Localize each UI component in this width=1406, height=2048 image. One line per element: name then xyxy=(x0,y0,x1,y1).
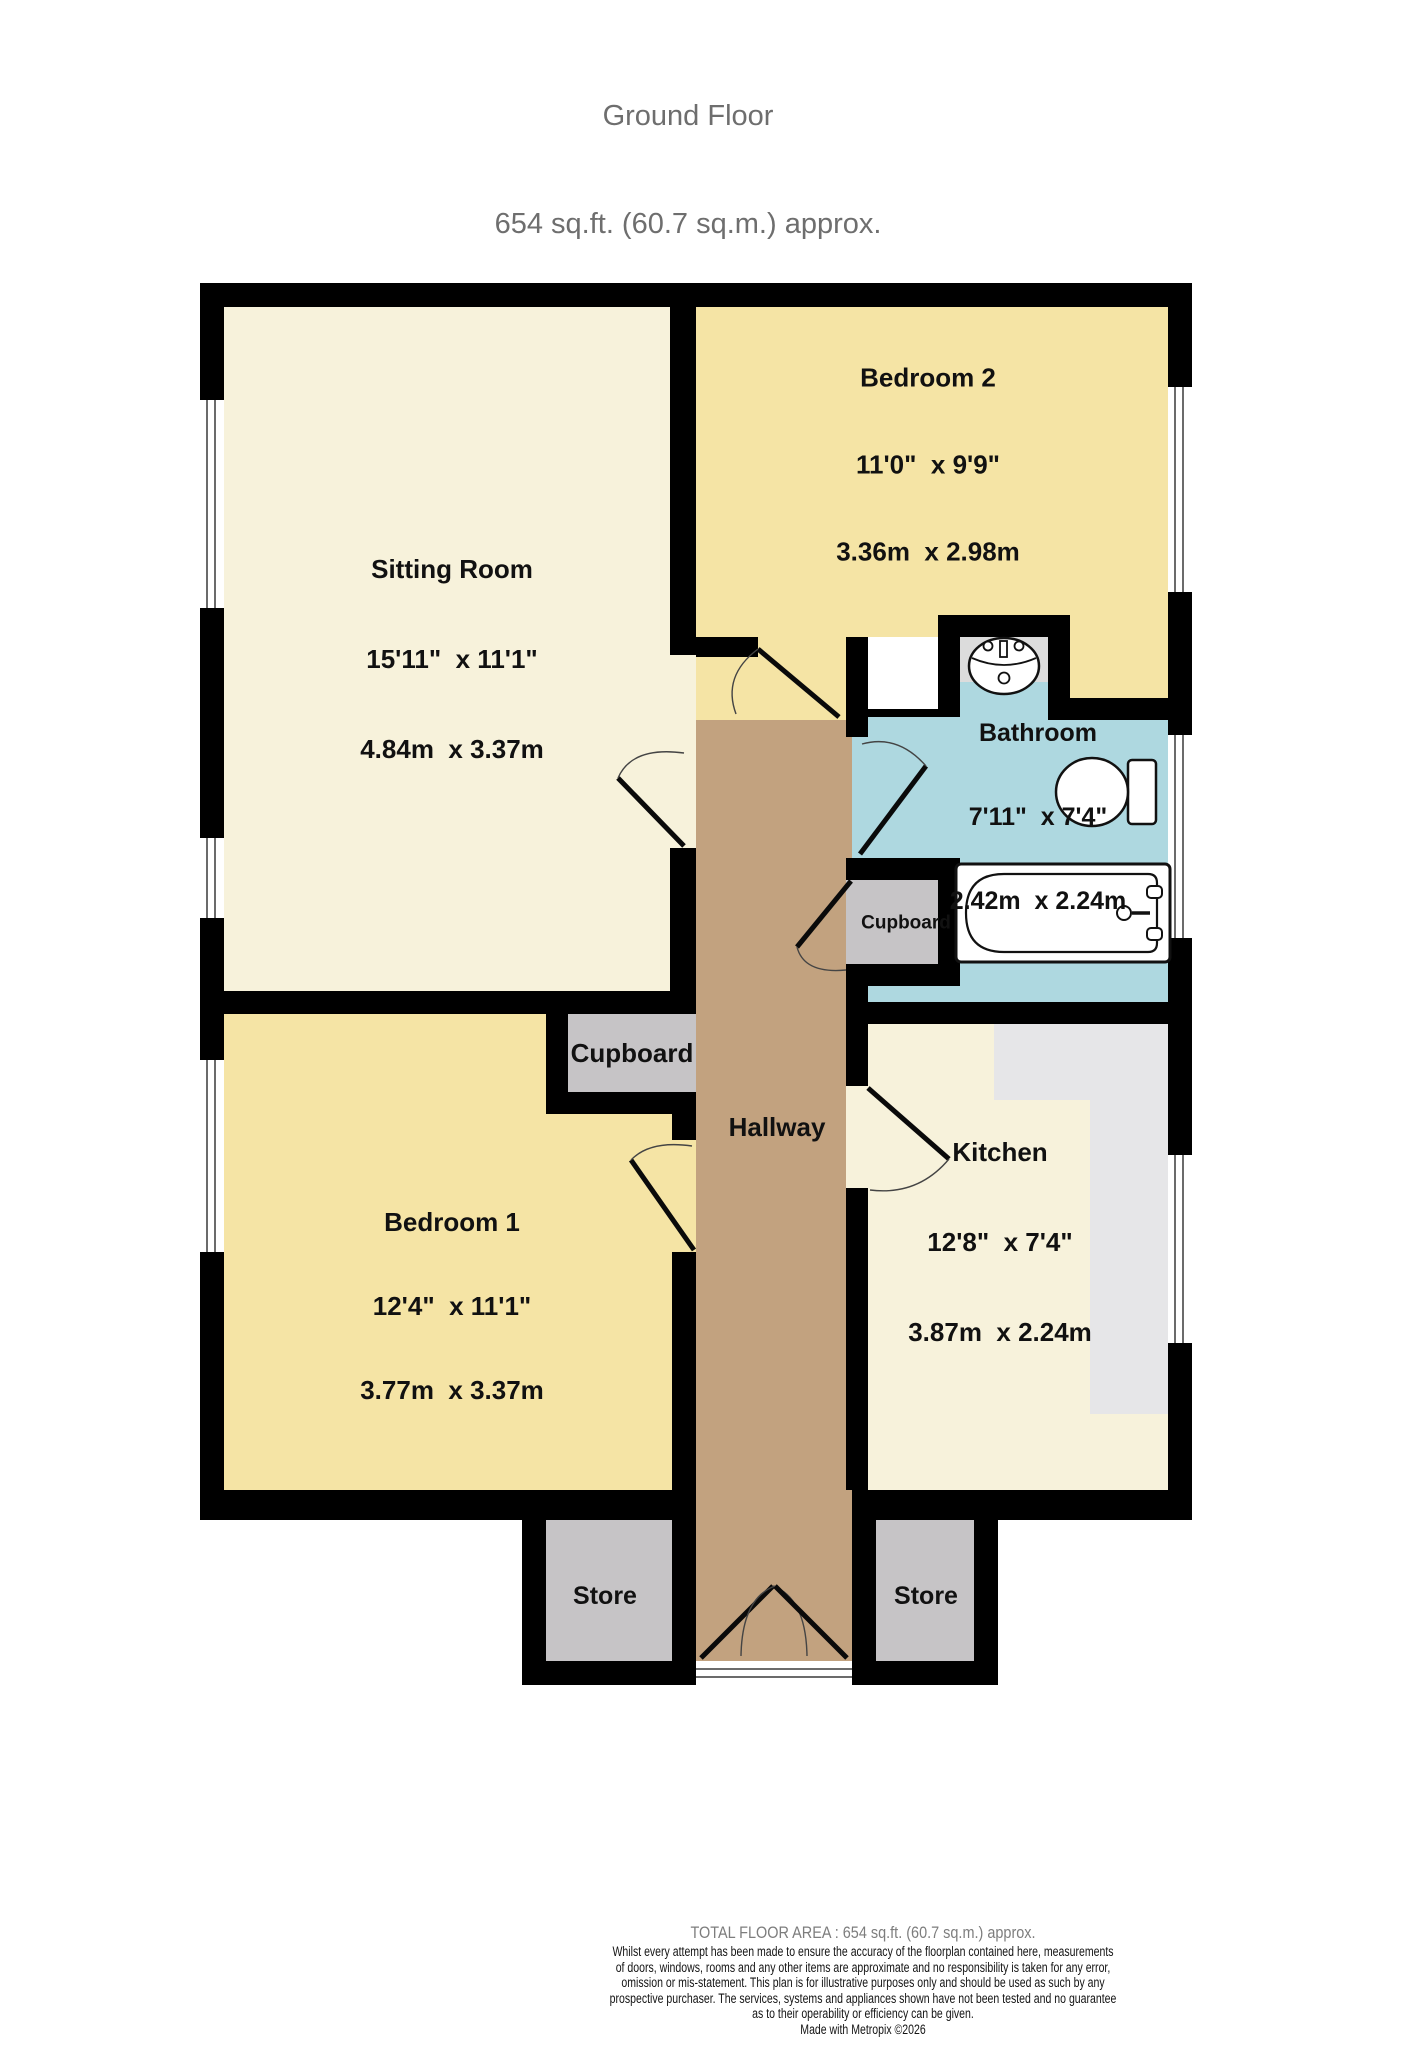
window-glyph xyxy=(200,1060,224,1252)
floorplan-page: Ground Floor 654 sq.ft. (60.7 sq.m.) app… xyxy=(0,0,1406,2048)
room-label-cupboard-large: Cupboard xyxy=(571,988,694,1118)
disclaimer-line: Whilst every attempt has been made to en… xyxy=(567,1944,1160,1960)
room-label-hallway: Hallway xyxy=(729,1062,826,1192)
room-label-store-left: Store xyxy=(573,1531,637,1661)
room-label-cupboard-small: Cupboard xyxy=(861,876,951,971)
window-glyph xyxy=(200,838,224,918)
kitchen-doorway xyxy=(846,1086,868,1188)
room-label-store-right: Store xyxy=(894,1531,958,1661)
disclaimer-line: prospective purchaser. The services, sys… xyxy=(567,1991,1160,2007)
disclaimer-line: of doors, windows, rooms and any other i… xyxy=(567,1960,1160,1976)
kitchen-counter-right xyxy=(1090,1024,1168,1414)
window-glyph xyxy=(1168,735,1192,938)
room-label-bedroom-2: Bedroom 2 11'0" x 9'9" 3.36m x 2.98m xyxy=(836,306,1020,625)
total-floor-area: TOTAL FLOOR AREA : 654 sq.ft. (60.7 sq.m… xyxy=(540,1922,1186,1944)
floor-title: Ground Floor xyxy=(495,98,882,134)
window-glyph xyxy=(1168,1155,1192,1343)
room-label-kitchen: Kitchen 12'8" x 7'4" 3.87m x 2.24m xyxy=(908,1077,1092,1407)
entrance-door-panel xyxy=(696,1661,852,1685)
disclaimer-line: as to their operability or efficiency ca… xyxy=(567,2006,1160,2022)
room-label-bathroom: Bathroom 7'11" x 7'4" 2.42m x 2.24m xyxy=(950,663,1127,971)
window-glyph xyxy=(200,400,224,608)
void-alcove xyxy=(868,637,938,709)
page-title: Ground Floor 654 sq.ft. (60.7 sq.m.) app… xyxy=(495,26,882,314)
room-label-bedroom-1: Bedroom 1 12'4" x 11'1" 3.77m x 3.37m xyxy=(360,1152,544,1460)
floor-area-subtitle: 654 sq.ft. (60.7 sq.m.) approx. xyxy=(495,206,882,242)
disclaimer-line: omission or mis-statement. This plan is … xyxy=(567,1975,1160,1991)
window-glyph xyxy=(1168,387,1192,592)
room-label-sitting-room: Sitting Room 15'11" x 11'1" 4.84m x 3.37… xyxy=(360,494,544,824)
metropix-credit: Made with Metropix ©2026 xyxy=(567,2022,1160,2038)
footer: TOTAL FLOOR AREA : 654 sq.ft. (60.7 sq.m… xyxy=(483,1922,1243,2037)
